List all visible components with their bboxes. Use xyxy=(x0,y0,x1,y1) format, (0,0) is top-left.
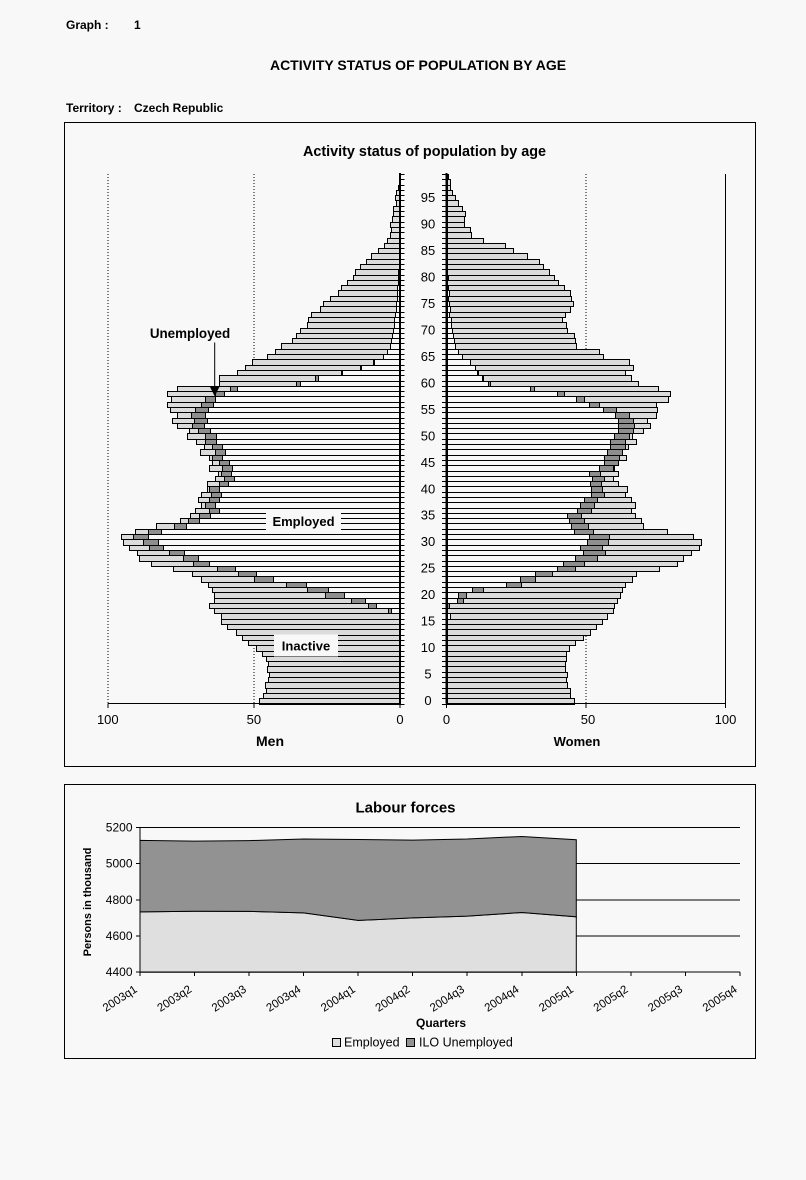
svg-text:4600: 4600 xyxy=(106,929,133,943)
svg-text:5: 5 xyxy=(424,667,431,682)
svg-text:20: 20 xyxy=(421,587,435,602)
svg-text:0: 0 xyxy=(424,693,431,708)
svg-text:Quarters: Quarters xyxy=(416,1016,466,1030)
svg-text:10: 10 xyxy=(421,640,435,655)
svg-text:60: 60 xyxy=(421,375,435,390)
svg-text:30: 30 xyxy=(421,534,435,549)
svg-text:80: 80 xyxy=(421,269,435,284)
svg-text:50: 50 xyxy=(247,712,261,727)
svg-text:45: 45 xyxy=(421,455,435,470)
svg-text:5200: 5200 xyxy=(106,820,133,834)
svg-text:65: 65 xyxy=(421,349,435,364)
svg-text:40: 40 xyxy=(421,481,435,496)
svg-text:75: 75 xyxy=(421,296,435,311)
svg-text:0: 0 xyxy=(396,712,403,727)
svg-text:90: 90 xyxy=(421,217,435,232)
svg-text:70: 70 xyxy=(421,322,435,337)
svg-text:Labour forces: Labour forces xyxy=(355,800,455,817)
svg-text:1: 1 xyxy=(134,18,141,32)
svg-text:Employed: Employed xyxy=(272,514,334,529)
svg-text:ACTIVITY STATUS OF POPULATION: ACTIVITY STATUS OF POPULATION BY AGE xyxy=(270,57,566,73)
svg-text:50: 50 xyxy=(581,712,595,727)
svg-text:Unemployed: Unemployed xyxy=(150,326,230,341)
svg-text:Territory :: Territory : xyxy=(66,101,122,115)
svg-text:Czech Republic: Czech Republic xyxy=(134,101,224,115)
svg-text:Employed: Employed xyxy=(344,1036,400,1050)
svg-text:Inactive: Inactive xyxy=(282,639,330,654)
svg-text:5000: 5000 xyxy=(106,857,133,871)
svg-text:4400: 4400 xyxy=(106,965,133,979)
svg-text:0: 0 xyxy=(443,712,450,727)
svg-text:Graph :: Graph : xyxy=(66,18,109,32)
svg-text:Men: Men xyxy=(256,733,284,749)
svg-text:100: 100 xyxy=(715,712,737,727)
svg-text:55: 55 xyxy=(421,402,435,417)
svg-text:100: 100 xyxy=(97,712,119,727)
svg-text:Activity status of population: Activity status of population by age xyxy=(303,144,546,160)
svg-text:Persons in thousand: Persons in thousand xyxy=(82,848,94,957)
svg-text:85: 85 xyxy=(421,243,435,258)
svg-text:25: 25 xyxy=(421,561,435,576)
svg-text:15: 15 xyxy=(421,614,435,629)
svg-text:Women: Women xyxy=(554,734,601,749)
svg-text:50: 50 xyxy=(421,428,435,443)
svg-text:35: 35 xyxy=(421,508,435,523)
svg-text:4800: 4800 xyxy=(106,893,133,907)
svg-text:95: 95 xyxy=(421,190,435,205)
svg-text:ILO Unemployed: ILO Unemployed xyxy=(419,1036,513,1050)
